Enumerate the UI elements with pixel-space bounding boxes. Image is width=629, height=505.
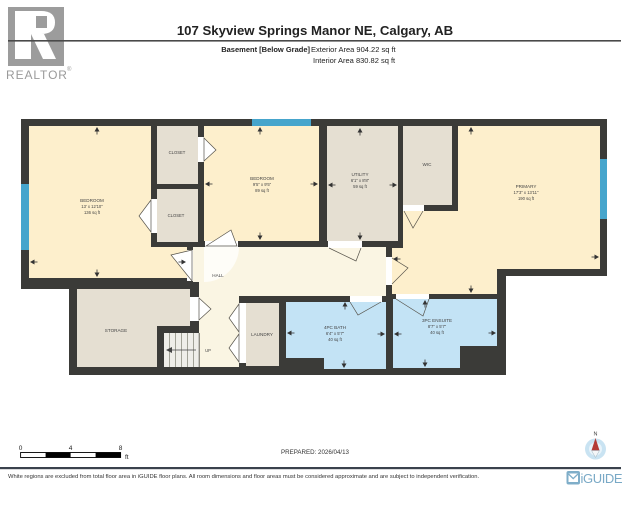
svg-text:40 sq ft: 40 sq ft bbox=[328, 337, 343, 342]
svg-text:190 sq ft: 190 sq ft bbox=[518, 196, 535, 201]
svg-text:6'4" x 5'7": 6'4" x 5'7" bbox=[326, 331, 345, 336]
svg-text:CLOSET: CLOSET bbox=[169, 150, 186, 155]
svg-text:17'3" x 13'11": 17'3" x 13'11" bbox=[514, 190, 539, 195]
svg-text:UTILITY: UTILITY bbox=[351, 172, 368, 177]
svg-text:8'7" x 5'7": 8'7" x 5'7" bbox=[428, 324, 447, 329]
svg-text:N: N bbox=[594, 432, 598, 438]
svg-text:REALTOR: REALTOR bbox=[6, 68, 68, 82]
svg-text:BEDROOM: BEDROOM bbox=[80, 198, 104, 203]
svg-text:4: 4 bbox=[69, 445, 73, 452]
svg-text:4PC BATH: 4PC BATH bbox=[324, 325, 346, 330]
svg-text:®: ® bbox=[67, 66, 72, 73]
svg-text:PREPARED: 2026/04/13: PREPARED: 2026/04/13 bbox=[281, 449, 350, 456]
svg-text:PRIMARY: PRIMARY bbox=[516, 184, 537, 189]
svg-text:9'5" x 9'5": 9'5" x 9'5" bbox=[253, 182, 272, 187]
svg-text:6'1" x 8'8": 6'1" x 8'8" bbox=[351, 178, 370, 183]
svg-text:LAUNDRY: LAUNDRY bbox=[251, 332, 273, 337]
svg-text:8: 8 bbox=[119, 445, 123, 452]
svg-text:White regions are excluded fro: White regions are excluded from total fl… bbox=[8, 474, 479, 480]
svg-text:136 sq ft: 136 sq ft bbox=[84, 210, 101, 215]
svg-text:HALL: HALL bbox=[212, 273, 224, 278]
svg-text:107 Skyview Springs Manor NE,: 107 Skyview Springs Manor NE, Calgary, A… bbox=[177, 23, 453, 38]
svg-text:3PC ENSUITE: 3PC ENSUITE bbox=[422, 318, 452, 323]
svg-text:89 sq ft: 89 sq ft bbox=[255, 188, 270, 193]
svg-text:Basement [Below Grade]: Basement [Below Grade] bbox=[221, 45, 310, 54]
svg-text:CLOSET: CLOSET bbox=[168, 213, 185, 218]
svg-text:iGUIDE: iGUIDE bbox=[581, 471, 623, 486]
svg-text:BEDROOM: BEDROOM bbox=[250, 176, 274, 181]
svg-text:Interior Area 830.82 sq ft: Interior Area 830.82 sq ft bbox=[313, 56, 396, 65]
svg-text:WIC: WIC bbox=[423, 162, 433, 167]
svg-text:13' x 12'10": 13' x 12'10" bbox=[81, 204, 103, 209]
svg-text:UP: UP bbox=[205, 348, 211, 353]
svg-text:ft: ft bbox=[125, 454, 129, 461]
svg-text:STORAGE: STORAGE bbox=[105, 328, 127, 333]
svg-text:59 sq ft: 59 sq ft bbox=[353, 184, 368, 189]
svg-text:40 sq ft: 40 sq ft bbox=[430, 330, 445, 335]
svg-text:0: 0 bbox=[19, 445, 23, 452]
svg-text:Exterior Area 904.22 sq ft: Exterior Area 904.22 sq ft bbox=[311, 45, 397, 54]
